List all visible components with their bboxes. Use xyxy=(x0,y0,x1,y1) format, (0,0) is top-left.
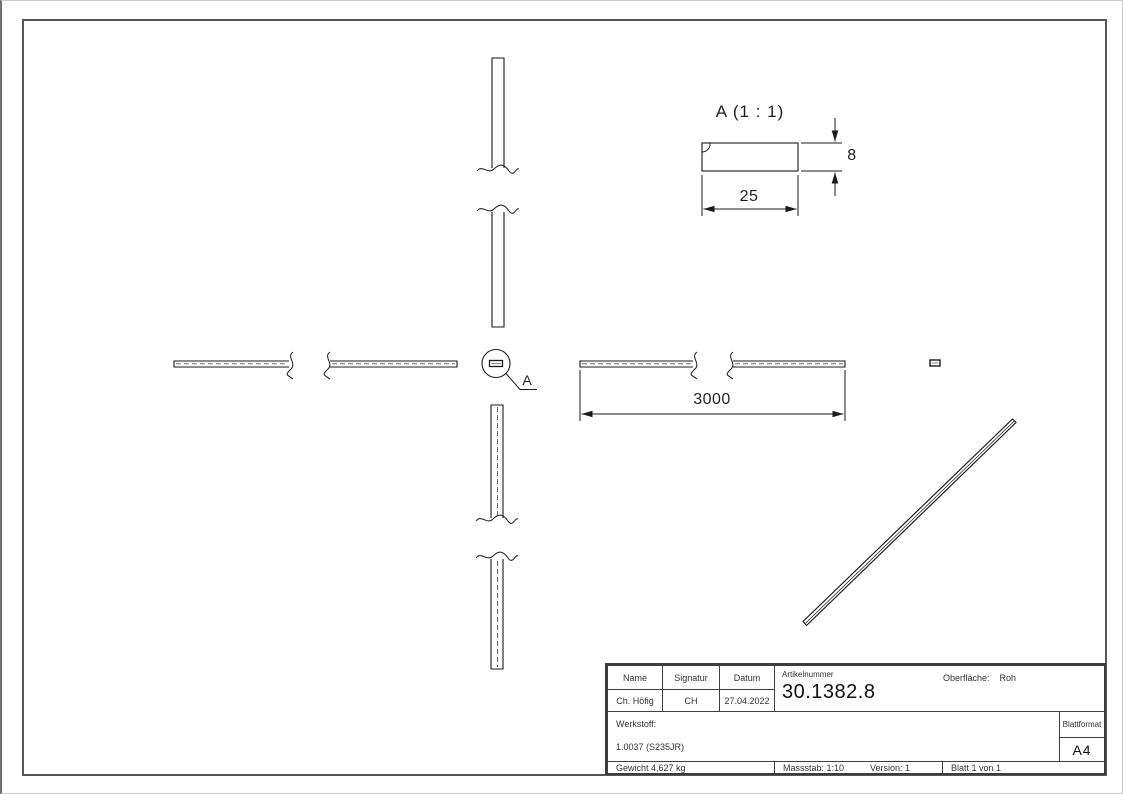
article-number-value: 30.1382.8 xyxy=(782,681,875,704)
sheet-frame-border xyxy=(23,20,1106,775)
side-view-vertical-bar xyxy=(491,405,503,669)
scale-value: Massstab: 1:10 xyxy=(783,763,844,773)
weight-cell: Gewicht 4,627 kg xyxy=(607,761,775,773)
sheet-format-label: Blattformat xyxy=(1059,711,1104,738)
article-number-label: Artikelnummer xyxy=(782,670,834,679)
break-lines-left-bar xyxy=(287,352,330,379)
titleblock-article-cell: Artikelnummer 30.1382.8 Oberfläche:Roh xyxy=(774,665,1104,712)
isometric-view-bar xyxy=(803,419,1016,626)
version-value: Version: 1 xyxy=(870,763,910,773)
sheet-number-value: Blatt 1 von 1 xyxy=(951,763,1001,773)
dimension-25-value: 25 xyxy=(729,188,769,206)
top-view-right-bar xyxy=(580,361,845,367)
titleblock-material-cell: Werkstoff: 1.0037 (S235JR) xyxy=(607,711,1060,762)
titleblock-value-signature: CH xyxy=(662,689,720,712)
break-lines-bottom-bar xyxy=(476,515,518,560)
titleblock-header-signature: Signatur xyxy=(662,665,720,690)
surface-label: Oberfläche: xyxy=(943,673,990,683)
front-view-vertical-bar xyxy=(492,58,504,327)
end-view-small-rect xyxy=(930,360,940,366)
weight-value: Gewicht 4,627 kg xyxy=(616,763,686,773)
material-label: Werkstoff: xyxy=(616,719,656,729)
sheet-format-value: A4 xyxy=(1059,737,1104,762)
break-lines-top-bar xyxy=(477,165,519,213)
surface-finish: Oberfläche:Roh xyxy=(943,673,1016,683)
scale-cell: Massstab: 1:10 Version: 1 xyxy=(774,761,943,773)
dimension-8-lines xyxy=(801,118,842,196)
dimension-8-value: 8 xyxy=(842,147,862,165)
surface-value: Roh xyxy=(1000,673,1017,683)
drawing-sheet: A (1 : 1) 8 25 3000 A Name Signatur Datu… xyxy=(0,0,1123,794)
title-block: Name Signatur Datum Ch. Höfig CH 27.04.2… xyxy=(605,663,1106,775)
detail-callout-letter: A xyxy=(518,372,536,388)
detail-view-rect xyxy=(702,143,798,171)
material-value: 1.0037 (S235JR) xyxy=(616,742,684,752)
dimension-3000-value: 3000 xyxy=(685,391,739,409)
detail-view-title: A (1 : 1) xyxy=(705,102,795,122)
sheet-number-cell: Blatt 1 von 1 xyxy=(942,761,1104,773)
titleblock-header-name: Name xyxy=(607,665,663,690)
titleblock-header-date: Datum xyxy=(719,665,775,690)
titleblock-value-date: 27.04.2022 xyxy=(719,689,775,712)
break-lines-right-bar xyxy=(691,352,733,379)
titleblock-value-name: Ch. Höfig xyxy=(607,689,663,712)
